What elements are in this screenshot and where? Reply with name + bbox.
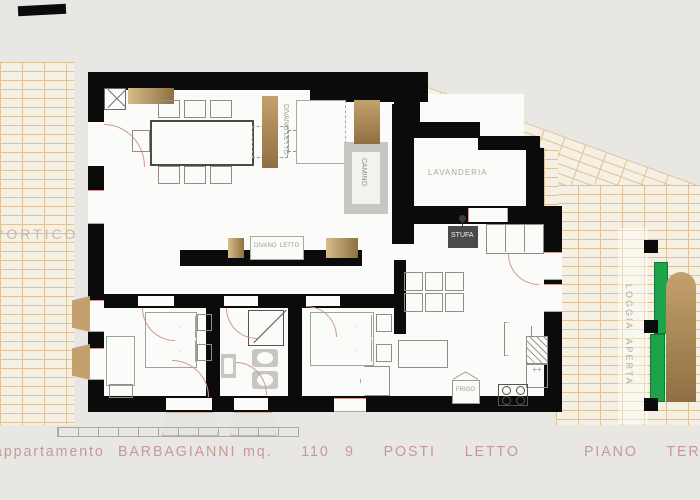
- caption-size: mq. 110: [243, 443, 330, 460]
- nightstand: [376, 344, 392, 362]
- window-sill-1: [72, 296, 90, 332]
- hallway-floor: [102, 264, 398, 296]
- green-shutter-2: [650, 334, 665, 402]
- dining-chair: [158, 100, 180, 118]
- entry-door-gap: [88, 122, 104, 166]
- cabinet-right: [326, 238, 358, 258]
- window-left-bed1a: [88, 300, 104, 332]
- loggia-pillar-2: [644, 320, 658, 333]
- wall-lavanderia-right: [526, 148, 544, 210]
- sofa-seat: [425, 272, 444, 291]
- door-gap-mid: [468, 208, 508, 222]
- portico-label: PORTICO: [0, 226, 79, 242]
- dining-table: [150, 120, 254, 166]
- window-sill-2: [72, 344, 90, 380]
- wall-bottom: [90, 396, 562, 412]
- door-gap-bed2: [306, 296, 340, 306]
- cabinet-left: [228, 238, 244, 258]
- kitchen-unit: ++: [526, 364, 548, 388]
- wall-lavanderia-top1: [414, 122, 480, 138]
- lavanderia-label: LAVANDERIA: [428, 168, 488, 177]
- nightstand: [376, 314, 392, 332]
- window-left-living: [88, 190, 104, 224]
- caption-floor: PIANO TERRA: [584, 443, 700, 460]
- door-gap-bottom-1: [166, 398, 212, 410]
- sofa-seat: [425, 293, 444, 312]
- sofa-bed-outline: [296, 100, 346, 164]
- stove: [498, 384, 528, 406]
- dining-chair: [184, 100, 206, 118]
- caption-prefix: appartamento: [0, 443, 105, 460]
- camino-label: CAMINO: [360, 158, 367, 202]
- shower-diagonal: [253, 310, 286, 343]
- single-bed: [106, 336, 135, 386]
- sofa-three-seat: [486, 224, 544, 254]
- wardrobe: [262, 96, 278, 168]
- door-gap-bed1: [138, 296, 174, 306]
- loggia-pillar-3: [644, 398, 658, 411]
- burner: [502, 386, 511, 395]
- sofa-seat: [404, 293, 423, 312]
- loggia-label: LOGGIA APERTA: [624, 284, 634, 414]
- single-bed-foot: [109, 384, 133, 398]
- dining-chair: [158, 166, 180, 184]
- nightstand: [197, 314, 212, 331]
- burner: [502, 396, 511, 405]
- sofa-divider: [505, 225, 506, 252]
- door-gap-bottom-2: [234, 398, 268, 410]
- frigo-label: FRIGO: [456, 387, 475, 393]
- sectional-sofa: [404, 272, 464, 312]
- bidet: [252, 349, 278, 367]
- divano-letto-label: DIVANO LETTO: [254, 243, 299, 249]
- wall-fragment: [18, 4, 66, 16]
- kitchen-sink: [526, 336, 548, 364]
- caption-apartment-name: BARBAGIANNI: [118, 443, 236, 460]
- nightstand: [197, 344, 212, 361]
- dining-chair: [210, 166, 232, 184]
- dining-chair: [132, 130, 150, 152]
- burner: [516, 396, 525, 405]
- sofa-seat: [445, 272, 464, 291]
- portico-area: [0, 62, 74, 425]
- loggia-column: [666, 272, 696, 402]
- window-left-bed1b: [88, 348, 104, 380]
- bedroom2-armchair: [360, 366, 390, 396]
- wall-bath-bed2: [288, 308, 302, 396]
- bidet-bowl: [257, 352, 273, 364]
- stufa-label: STUFA: [451, 232, 474, 239]
- bath-sink: [221, 354, 236, 378]
- hall-table: [398, 340, 448, 368]
- wood-box-camino: [354, 100, 380, 144]
- window-right-2: [544, 284, 562, 312]
- dining-chair: [184, 166, 206, 184]
- sofa-divider: [524, 225, 525, 252]
- pillar-x: [104, 88, 126, 110]
- floor-plan: PORTICO LEGNAIA FORNO LOGGIA APERTA: [0, 0, 700, 500]
- burner: [516, 386, 525, 395]
- door-gap-bath: [224, 296, 258, 306]
- caption-beds: 9 POSTI LETTO: [345, 443, 520, 460]
- divano-letto-vert-label: DIVANO LETTO: [282, 104, 289, 164]
- window-right-1: [544, 252, 562, 280]
- dining-chair: [210, 100, 232, 118]
- stufa-flue-line: [462, 221, 463, 227]
- window-gap-bottom: [334, 398, 366, 412]
- sofa-seat: [404, 272, 423, 291]
- scale-bar: [57, 427, 299, 437]
- sofa-seat: [445, 293, 464, 312]
- sink-basin: [224, 358, 233, 374]
- loggia-pillar-1: [644, 240, 658, 253]
